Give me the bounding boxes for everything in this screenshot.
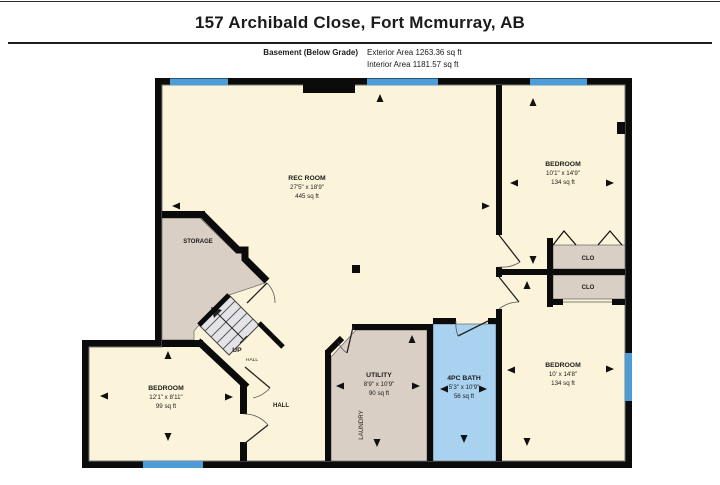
label-up: UP [232, 347, 242, 354]
window [170, 79, 228, 86]
label-utility: UTILITY [366, 372, 392, 379]
label-hall: HALL [273, 403, 289, 409]
label-storage: STORAGE [183, 239, 213, 245]
label-laundry: LAUNDRY [358, 410, 365, 439]
label-bedroom-bl: BEDROOM [148, 385, 184, 392]
label-bedroom-bl-area: 99 sq ft [156, 403, 177, 410]
label-bedroom-br-dims: 10' x 14'8" [549, 371, 577, 378]
label-bedroom-br: BEDROOM [545, 362, 581, 369]
label-bath-area: 56 sq ft [454, 393, 475, 400]
label-bedroom-tr-area: 134 sq ft [551, 179, 575, 186]
label-stair-hall: HALL [246, 357, 258, 363]
label-utility-dims: 8'9" x 10'9" [364, 381, 395, 388]
window [367, 79, 438, 86]
floor-plan: REC ROOM 27'5" x 18'9" 445 sq ft STORAGE… [0, 0, 720, 485]
label-bedroom-bl-dims: 12'1" x 8'11" [149, 394, 182, 401]
label-bedroom-tr: BEDROOM [545, 161, 581, 168]
window [143, 461, 203, 468]
label-bedroom-br-area: 134 sq ft [551, 380, 575, 387]
window [625, 353, 632, 401]
label-closet-top: CLO [582, 256, 595, 262]
label-bedroom-tr-dims: 10'1" x 14'9" [546, 170, 580, 177]
label-rec-room: REC ROOM [288, 175, 326, 182]
label-rec-room-area: 445 sq ft [295, 193, 319, 200]
label-rec-room-dims: 27'5" x 18'9" [290, 184, 324, 191]
window [530, 79, 587, 86]
label-utility-area: 90 sq ft [369, 390, 390, 397]
label-closet-bottom: CLO [582, 285, 595, 291]
label-bath: 4PC BATH [447, 375, 481, 382]
label-bath-dims: 5'3" x 10'9" [449, 384, 480, 391]
